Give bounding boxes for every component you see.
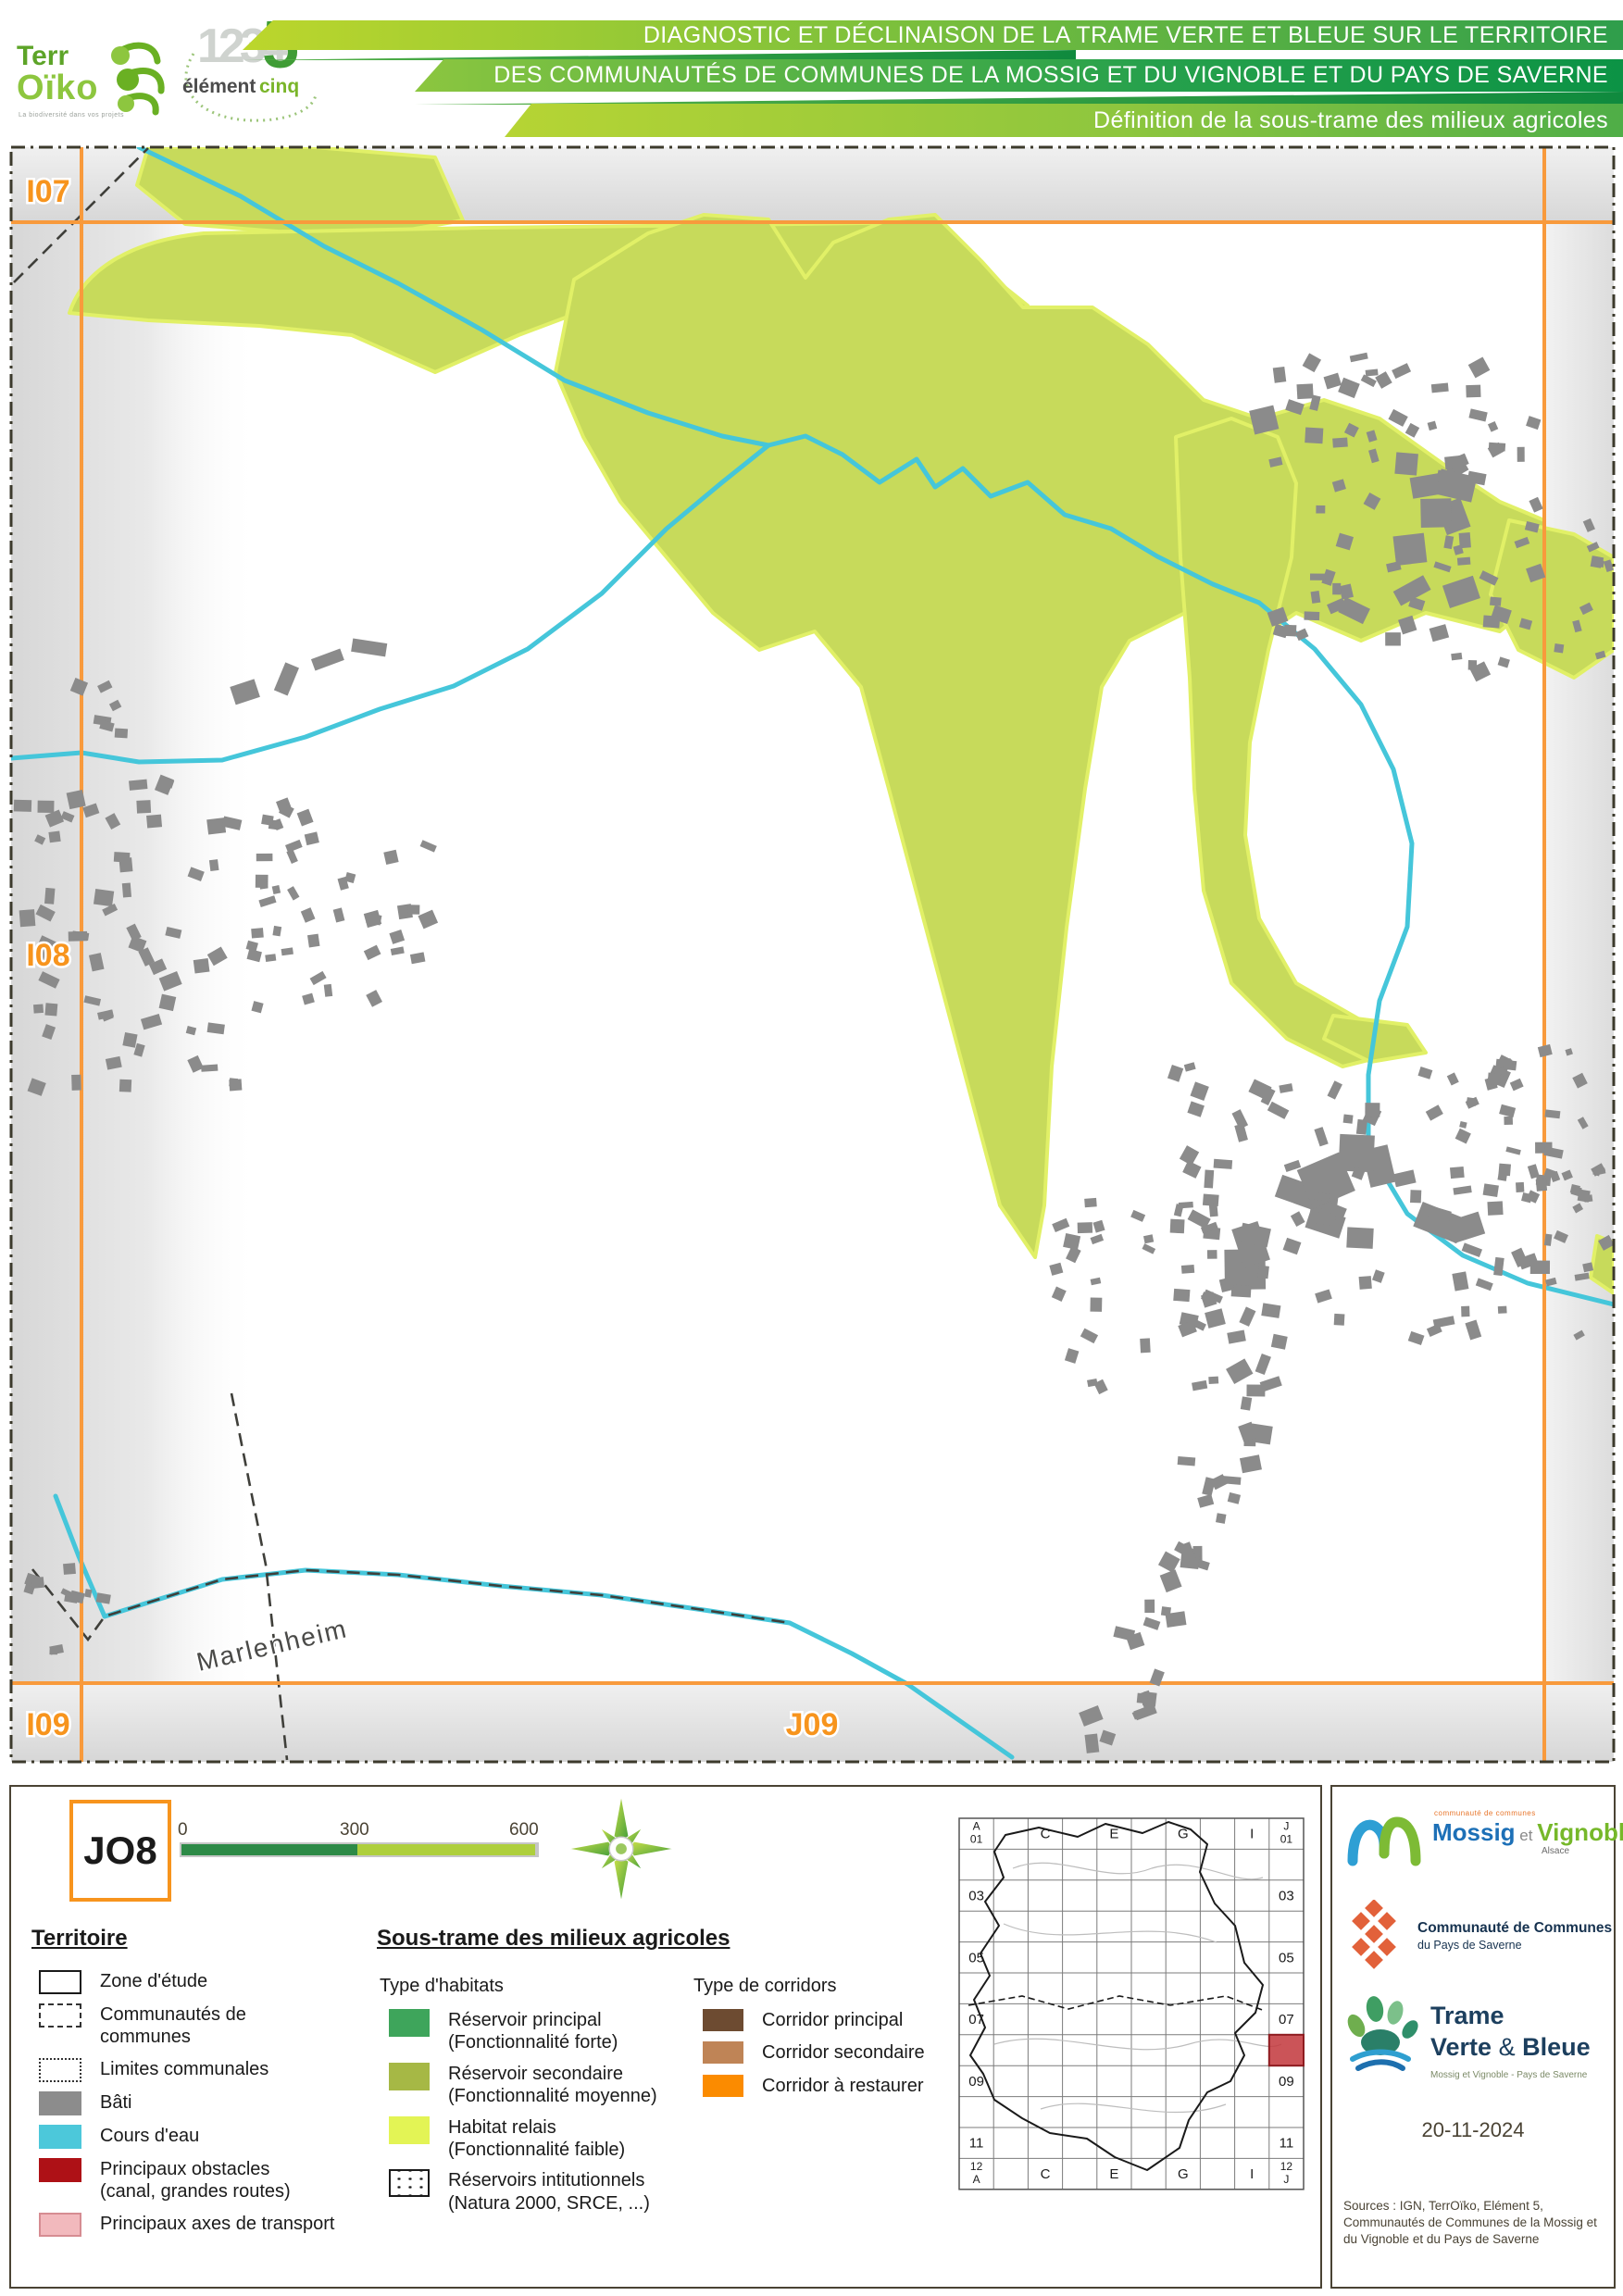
mossig-wordmark: Mossig et Vignoble xyxy=(1432,1818,1623,1847)
sous-trame-heading: Sous-trame des milieux agricoles xyxy=(377,1926,730,1952)
compass-rose-icon xyxy=(567,1794,676,1903)
svg-text:E: E xyxy=(1109,2166,1118,2182)
map-canvas: I07 I08 I09 J09 Marlenheim xyxy=(9,145,1616,1764)
legend-swatch xyxy=(39,2058,81,2082)
legend-label: Communautés de communes xyxy=(100,2003,246,2049)
sheet-id-box: JO8 xyxy=(69,1800,171,1902)
legend-swatch xyxy=(39,2125,81,2149)
title-line1: DIAGNOSTIC ET DÉCLINAISON DE LA TRAME VE… xyxy=(643,22,1608,49)
legend-item: Réservoir principal (Fonctionnalité fort… xyxy=(389,2009,685,2054)
trame-verte-bleue-logo: Trame Verte & Bleue Mossig et Vignoble -… xyxy=(1345,1994,1603,2102)
legend-label: Corridor à restaurer xyxy=(762,2075,924,2097)
title-line2: DES COMMUNAUTÉS DE COMMUNES DE LA MOSSIG… xyxy=(493,62,1608,89)
legend-label: Corridor principal xyxy=(762,2009,903,2031)
sheet-label-i07: I07 xyxy=(26,174,69,209)
title-banner-line2: DES COMMUNAUTÉS DE COMMUNES DE LA MOSSIG… xyxy=(415,59,1623,92)
terroiko-tagline: La biodiversité dans vos projets xyxy=(19,112,124,119)
tvb-bleue: Bleue xyxy=(1522,2033,1591,2061)
svg-text:11: 11 xyxy=(969,2136,984,2152)
legend-label: Principaux obstacles (canal, grandes rou… xyxy=(100,2158,291,2203)
scale-tick-300: 300 xyxy=(340,1820,369,1841)
scale-bar-segment-light xyxy=(357,1844,535,1855)
habitats-subheading: Type d'habitats xyxy=(380,1976,504,1997)
legend-label: Corridor secondaire xyxy=(762,2041,925,2064)
terroiko-logo: Terr Oïko La biodiversité dans vos proje… xyxy=(17,24,174,126)
territoire-heading: Territoire xyxy=(31,1926,128,1952)
svg-text:09: 09 xyxy=(1279,2074,1294,2090)
svg-text:C: C xyxy=(1041,1827,1051,1842)
legend-swatch xyxy=(389,2063,430,2090)
sheet-id: JO8 xyxy=(83,1828,156,1873)
legend-item: Bâti xyxy=(39,2091,363,2115)
legend-item: Réservoirs intitutionnels (Natura 2000, … xyxy=(389,2169,685,2215)
legend-swatch xyxy=(39,2213,81,2237)
svg-text:05: 05 xyxy=(968,1950,984,1965)
scale-bar-segment-dark xyxy=(181,1844,357,1855)
svg-text:I: I xyxy=(1250,1827,1254,1842)
mossig-word2: Vignoble xyxy=(1537,1818,1623,1846)
header-accent-wedge xyxy=(415,92,1623,105)
saverne-diamonds-icon xyxy=(1345,1900,1410,1972)
saverne-line1: Communauté de Communes xyxy=(1417,1920,1612,1937)
territoire-items: Zone d'étudeCommunautés de communesLimit… xyxy=(39,1970,363,2237)
terroiko-name-top: Terr xyxy=(17,41,69,72)
header: Terr Oïko La biodiversité dans vos proje… xyxy=(0,0,1623,145)
tvb-amp: & xyxy=(1499,2033,1523,2061)
legend-swatch xyxy=(39,1970,81,1994)
svg-text:01: 01 xyxy=(970,1833,983,1846)
svg-text:E: E xyxy=(1109,1827,1118,1842)
svg-text:03: 03 xyxy=(1279,1889,1294,1904)
elementcinq-word1: élément xyxy=(182,76,256,98)
legend-label: Zone d'étude xyxy=(100,1970,207,1992)
legend-swatch xyxy=(389,2009,430,2037)
elementcinq-word2: cinq xyxy=(259,76,299,98)
mossig-word1: Mossig xyxy=(1432,1818,1516,1846)
index-grid-map: A01J0112A12JCEGICEGI03050709110305070911 xyxy=(957,1813,1307,2211)
legend-swatch xyxy=(703,2075,743,2097)
subtitle-banner: Définition de la sous-trame des milieux … xyxy=(505,104,1623,137)
legend-label: Réservoir secondaire (Fonctionnalité moy… xyxy=(448,2063,657,2108)
map-drawing: I07 I08 I09 J09 Marlenheim xyxy=(9,145,1616,1764)
svg-text:J: J xyxy=(1283,2173,1289,2186)
corridors-subheading: Type de corridors xyxy=(693,1976,837,1997)
svg-text:I: I xyxy=(1250,2166,1254,2182)
scale-tick-0: 0 xyxy=(178,1820,188,1841)
legend-swatch xyxy=(703,2009,743,2031)
legend-item: Habitat relais (Fonctionnalité faible) xyxy=(389,2116,685,2162)
legend-label: Réservoir principal (Fonctionnalité fort… xyxy=(448,2009,618,2054)
legend-panel: JO8 0 300 600 m xyxy=(9,1785,1322,2289)
mossig-small-text: communauté de communes xyxy=(1434,1809,1536,1817)
tvb-paw-icon xyxy=(1343,1994,1425,2087)
legend-label: Bâti xyxy=(100,2091,131,2114)
legend-item: Corridor principal xyxy=(703,2009,999,2031)
svg-text:G: G xyxy=(1178,1827,1189,1842)
svg-text:12: 12 xyxy=(970,2160,983,2173)
legend-swatch xyxy=(703,2041,743,2064)
legend-item: Limites communales xyxy=(39,2058,363,2082)
tvb-line1: Trame xyxy=(1430,2002,1504,2030)
map-date: 20-11-2024 xyxy=(1332,2118,1614,2142)
legend-item: Corridor à restaurer xyxy=(703,2075,999,2097)
habitat-items: Réservoir principal (Fonctionnalité fort… xyxy=(389,2009,685,2215)
saverne-line2: du Pays de Saverne xyxy=(1417,1939,1522,1952)
legend-swatch xyxy=(389,2116,430,2144)
legend-item: Communautés de communes xyxy=(39,2003,363,2049)
corridor-items: Corridor principalCorridor secondaireCor… xyxy=(703,2009,999,2097)
svg-text:G: G xyxy=(1178,2166,1189,2182)
svg-text:05: 05 xyxy=(1279,1950,1294,1965)
legend-label: Réservoirs intitutionnels (Natura 2000, … xyxy=(448,2169,650,2215)
svg-text:07: 07 xyxy=(1279,2012,1294,2028)
svg-text:A: A xyxy=(973,2173,980,2186)
sheet-label-i09: I09 xyxy=(26,1707,69,1742)
svg-text:09: 09 xyxy=(968,2074,984,2090)
mossig-et: et xyxy=(1516,1827,1538,1844)
pays-de-saverne-logo: Communauté de Communes du Pays de Savern… xyxy=(1345,1900,1603,1978)
header-accent-wedge xyxy=(243,50,1076,60)
legend-item: Corridor secondaire xyxy=(703,2041,999,2064)
green-habitat-areas xyxy=(69,147,1614,1293)
mossig-region: Alsace xyxy=(1542,1846,1569,1856)
mossig-vignoble-logo: communauté de communes Mossig et Vignobl… xyxy=(1345,1802,1603,1883)
scale-bar-track xyxy=(180,1842,539,1857)
map-sheet-page: Terr Oïko La biodiversité dans vos proje… xyxy=(0,0,1623,2296)
svg-text:C: C xyxy=(1041,2166,1051,2182)
legend-label: Limites communales xyxy=(100,2058,268,2080)
legend-swatch xyxy=(39,2003,81,2028)
svg-text:12: 12 xyxy=(1280,2160,1293,2173)
svg-text:03: 03 xyxy=(968,1889,984,1904)
svg-text:01: 01 xyxy=(1280,1833,1293,1846)
sheet-label-i08: I08 xyxy=(26,938,69,973)
legend-label: Cours d'eau xyxy=(100,2125,199,2147)
tvb-verte: Verte xyxy=(1430,2033,1499,2061)
terroiko-name-bottom: Oïko xyxy=(17,69,98,108)
svg-text:11: 11 xyxy=(1280,2136,1294,2152)
legend-label: Principaux axes de transport xyxy=(100,2213,334,2235)
tvb-line2: Verte & Bleue xyxy=(1430,2033,1591,2062)
legend-swatch xyxy=(389,2169,430,2197)
sources-text: Sources : IGN, TerrOïko, Elément 5, Comm… xyxy=(1343,2198,1608,2249)
mossig-m-icon xyxy=(1343,1807,1425,1872)
legend-swatch xyxy=(39,2091,81,2115)
svg-text:J: J xyxy=(1283,1820,1289,1833)
subtitle: Définition de la sous-trame des milieux … xyxy=(1093,107,1608,134)
legend-item: Cours d'eau xyxy=(39,2125,363,2149)
title-banner-line1: DIAGNOSTIC ET DÉCLINAISON DE LA TRAME VE… xyxy=(243,20,1623,50)
legend-item: Principaux axes de transport xyxy=(39,2213,363,2237)
sheet-label-j09: J09 xyxy=(786,1707,839,1742)
legend-item: Réservoir secondaire (Fonctionnalité moy… xyxy=(389,2063,685,2108)
credits-panel: communauté de communes Mossig et Vignobl… xyxy=(1330,1785,1616,2289)
scale-bar: 0 300 600 m xyxy=(178,1820,557,1861)
legend-label: Habitat relais (Fonctionnalité faible) xyxy=(448,2116,625,2162)
svg-text:07: 07 xyxy=(968,2012,984,2028)
svg-text:A: A xyxy=(973,1820,980,1833)
tvb-subtitle: Mossig et Vignoble - Pays de Saverne xyxy=(1430,2070,1587,2080)
legend-swatch xyxy=(39,2158,81,2182)
legend-item: Principaux obstacles (canal, grandes rou… xyxy=(39,2158,363,2203)
legend-item: Zone d'étude xyxy=(39,1970,363,1994)
